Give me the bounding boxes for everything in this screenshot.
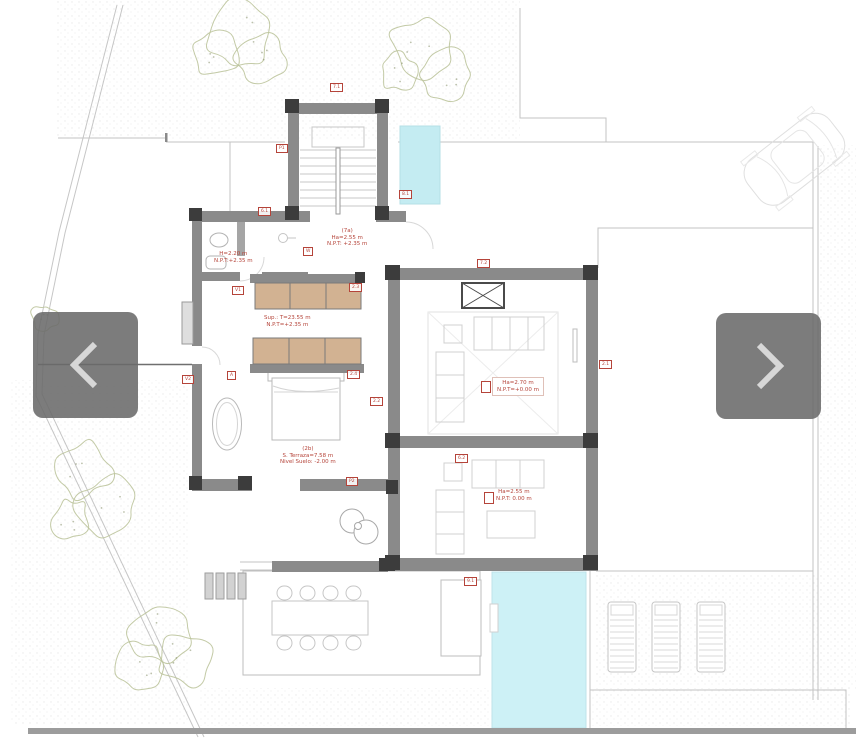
chevron-left-icon xyxy=(33,312,138,418)
pool-top xyxy=(400,126,440,204)
wardrobes xyxy=(253,283,361,364)
pool-ladder xyxy=(490,604,498,632)
image-viewer: 7.1P16.18.1W2.3V17.22.1A2.42.2V26.29.1P2… xyxy=(0,0,856,738)
bottom-bar xyxy=(28,728,856,734)
dining-terrace xyxy=(205,571,481,675)
walls xyxy=(182,103,598,572)
skylight xyxy=(462,283,504,308)
dining-table-set xyxy=(272,586,368,650)
bathroom-fixtures xyxy=(206,233,296,269)
chevron-right-icon xyxy=(716,313,821,419)
guest-room-furniture xyxy=(436,460,544,554)
carousel-prev-button[interactable] xyxy=(33,312,138,418)
living-room-furniture xyxy=(428,312,577,434)
bistro-table xyxy=(340,509,378,544)
staircase xyxy=(300,127,376,214)
sun-loungers xyxy=(608,602,725,672)
bedroom-furniture xyxy=(213,371,345,450)
pool-bottom xyxy=(490,572,586,728)
carousel-next-button[interactable] xyxy=(716,313,821,419)
terrace-steps xyxy=(205,573,246,599)
